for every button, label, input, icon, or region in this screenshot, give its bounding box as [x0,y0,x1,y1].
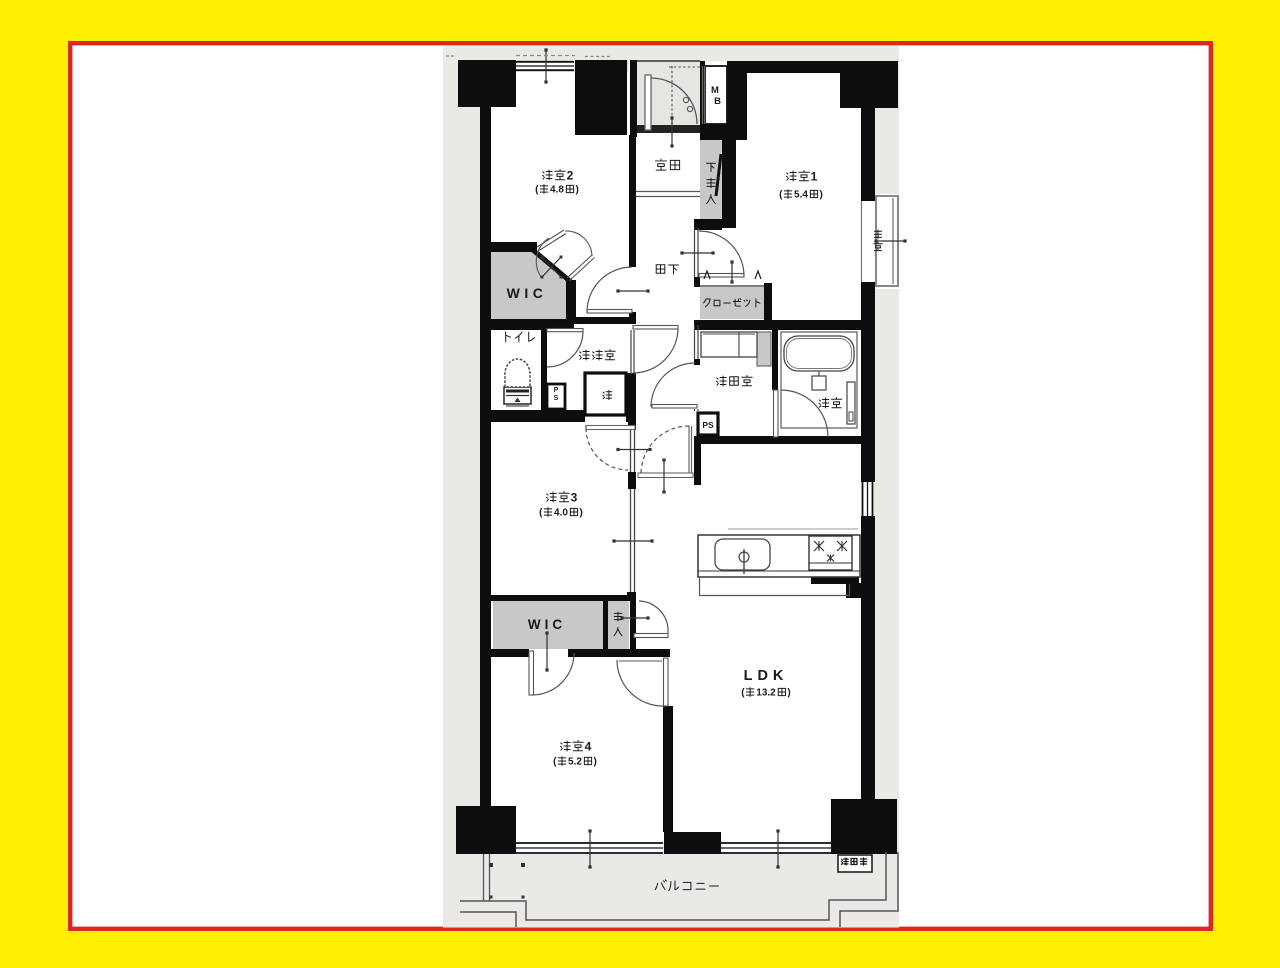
svg-text:4: 4 [585,739,592,753]
svg-text:LDK: LDK [744,668,789,684]
svg-text:2: 2 [567,168,574,182]
svg-text:P: P [554,387,559,394]
svg-text:1: 1 [811,169,818,183]
svg-text:PS: PS [702,420,714,430]
svg-text:B: B [714,96,721,107]
svg-text:WIC: WIC [507,285,548,301]
svg-text:WIC: WIC [528,617,566,632]
svg-text:S: S [554,395,559,402]
svg-text:4.0: 4.0 [554,508,568,519]
svg-text:): ) [820,190,823,201]
svg-text:3: 3 [571,490,578,504]
svg-text:M: M [711,85,719,96]
svg-text:): ) [787,688,790,699]
svg-text:5.2: 5.2 [568,757,582,768]
svg-text:5.4: 5.4 [794,190,808,201]
svg-text:): ) [594,757,597,768]
svg-text:13.2: 13.2 [756,688,776,699]
svg-text:): ) [580,508,583,519]
svg-text:): ) [576,185,579,196]
svg-text:4.8: 4.8 [550,185,564,196]
